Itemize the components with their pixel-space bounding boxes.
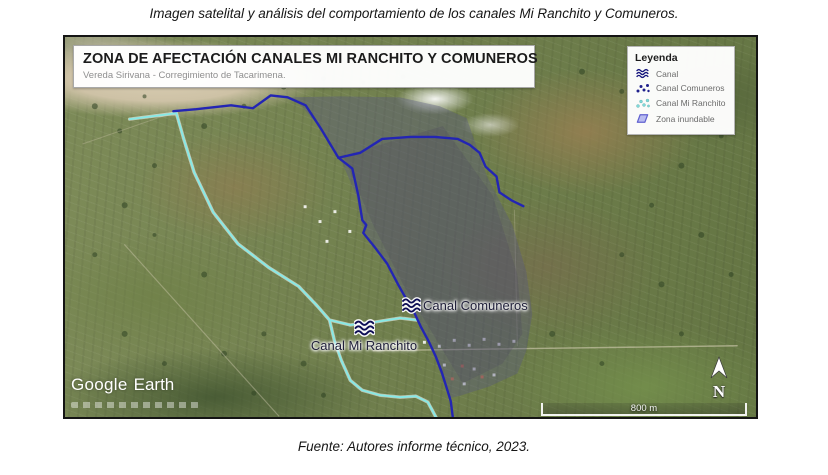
scale-bar: 800 m <box>541 403 747 416</box>
wave-icon <box>402 297 421 314</box>
legend-item-canal-mi-ranchito: Canal Mi Ranchito <box>635 97 727 109</box>
satellite-map: ZONA DE AFECTACIÓN CANALES MI RANCHITO Y… <box>63 35 758 419</box>
legend-item-label: Zona inundable <box>656 114 715 124</box>
legend-item-zona-inundable: Zona inundable <box>635 112 727 125</box>
north-arrow: N <box>705 356 733 402</box>
legend-item-canal: Canal <box>635 68 727 79</box>
legend-item-label: Canal Comuneros <box>656 83 725 93</box>
google-logo-text: Google <box>71 375 128 394</box>
wave-icon <box>354 319 375 337</box>
legend: Leyenda Canal <box>627 46 735 135</box>
legend-item-canal-comuneros: Canal Comuneros <box>635 82 727 94</box>
map-title-box: ZONA DE AFECTACIÓN CANALES MI RANCHITO Y… <box>73 45 535 88</box>
figure-caption: Fuente: Autores informe técnico, 2023. <box>0 439 828 454</box>
flood-polygon-icon <box>635 112 650 125</box>
canal-mi-ranchito-label: Canal Mi Ranchito <box>311 338 417 353</box>
north-label: N <box>705 382 733 402</box>
dotted-path-icon-navy <box>635 82 650 94</box>
figure-page: Imagen satelital y análisis del comporta… <box>0 0 828 475</box>
map-title: ZONA DE AFECTACIÓN CANALES MI RANCHITO Y… <box>83 51 525 67</box>
legend-item-label: Canal Mi Ranchito <box>656 98 725 108</box>
map-subtitle: Vereda Sirivana - Corregimiento de Tacar… <box>83 70 525 81</box>
dotted-path-icon-cyan <box>635 97 650 109</box>
legend-title: Leyenda <box>635 52 727 64</box>
google-earth-watermark: GoogleEarth <box>71 375 199 408</box>
canal-comuneros-annotation: Canal Comuneros <box>402 297 528 314</box>
scale-bar-label: 800 m <box>631 403 657 414</box>
canal-comuneros-label: Canal Comuneros <box>423 298 528 313</box>
map-attribution <box>71 402 199 408</box>
legend-item-label: Canal <box>656 69 678 79</box>
north-arrow-icon <box>705 356 733 380</box>
figure-title: Imagen satelital y análisis del comporta… <box>0 6 828 21</box>
earth-logo-text: Earth <box>134 375 175 394</box>
canal-mi-ranchito-annotation: Canal Mi Ranchito <box>303 319 425 353</box>
canal-wave-icon <box>635 68 650 79</box>
